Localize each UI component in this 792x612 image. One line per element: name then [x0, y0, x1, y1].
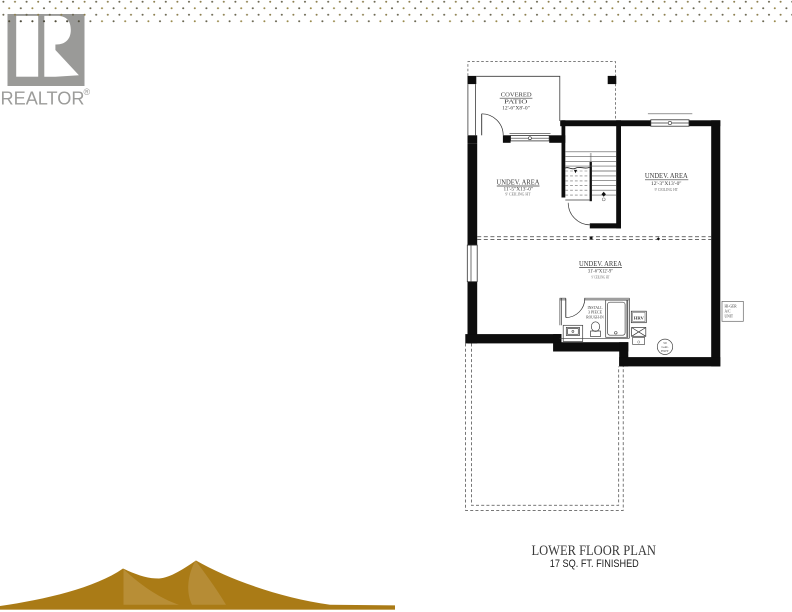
svg-text:ROUGH-IN: ROUGH-IN — [586, 315, 604, 319]
svg-text:REALTOR: REALTOR — [1, 88, 85, 109]
svg-text:HI-GER: HI-GER — [725, 305, 738, 309]
svg-text:0: 0 — [637, 340, 640, 345]
svg-text:HWT: HWT — [661, 349, 670, 353]
svg-text:UNDEV. AREA: UNDEV. AREA — [645, 172, 688, 180]
svg-text:9' CEILING HT: 9' CEILING HT — [592, 276, 611, 280]
svg-text:LOWER FLOOR PLAN: LOWER FLOOR PLAN — [531, 543, 656, 559]
svg-text:9' CEILING HT: 9' CEILING HT — [505, 192, 531, 196]
svg-text:31'-6"X12'-9": 31'-6"X12'-9" — [588, 270, 613, 275]
svg-text:3 PIECE: 3 PIECE — [588, 311, 603, 315]
svg-text:12'-3"X13'-0": 12'-3"X13'-0" — [651, 182, 682, 187]
svg-text:9' CEILING HT: 9' CEILING HT — [655, 188, 679, 192]
svg-text:UNDEV. AREA: UNDEV. AREA — [497, 179, 540, 187]
svg-text:UNIT: UNIT — [725, 315, 734, 319]
svg-text:HRV: HRV — [634, 315, 645, 320]
svg-text:17 SQ. FT. FINISHED: 17 SQ. FT. FINISHED — [550, 558, 639, 570]
svg-text:®: ® — [84, 87, 91, 97]
svg-text:INSTALL: INSTALL — [588, 306, 604, 310]
svg-text:COVERED: COVERED — [501, 91, 532, 98]
svg-text:UNDEV. AREA: UNDEV. AREA — [579, 260, 622, 268]
svg-text:12'-6"X8'-0": 12'-6"X8'-0" — [502, 105, 530, 111]
svg-text:PATIO: PATIO — [504, 98, 528, 105]
svg-text:A/C: A/C — [725, 310, 732, 314]
